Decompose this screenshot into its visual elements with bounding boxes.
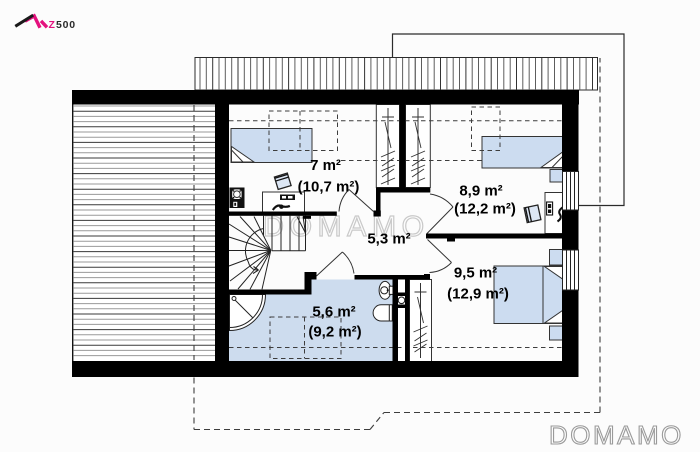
svg-text:7 m²: 7 m² (310, 157, 341, 174)
svg-text:(10,7 m²): (10,7 m²) (298, 178, 360, 195)
svg-text:(9,2 m²): (9,2 m²) (308, 323, 361, 340)
svg-text:5,3 m²: 5,3 m² (367, 231, 410, 248)
svg-text:(12,9 m²): (12,9 m²) (447, 285, 509, 302)
svg-text:Z: Z (49, 19, 56, 31)
svg-text:500: 500 (56, 19, 76, 31)
svg-text:8,9 m²: 8,9 m² (459, 182, 502, 199)
svg-text:DOMAMO: DOMAMO (549, 420, 684, 450)
svg-text:9,5 m²: 9,5 m² (454, 265, 497, 282)
svg-text:(12,2 m²): (12,2 m²) (454, 200, 516, 217)
svg-text:5,6 m²: 5,6 m² (312, 303, 355, 320)
